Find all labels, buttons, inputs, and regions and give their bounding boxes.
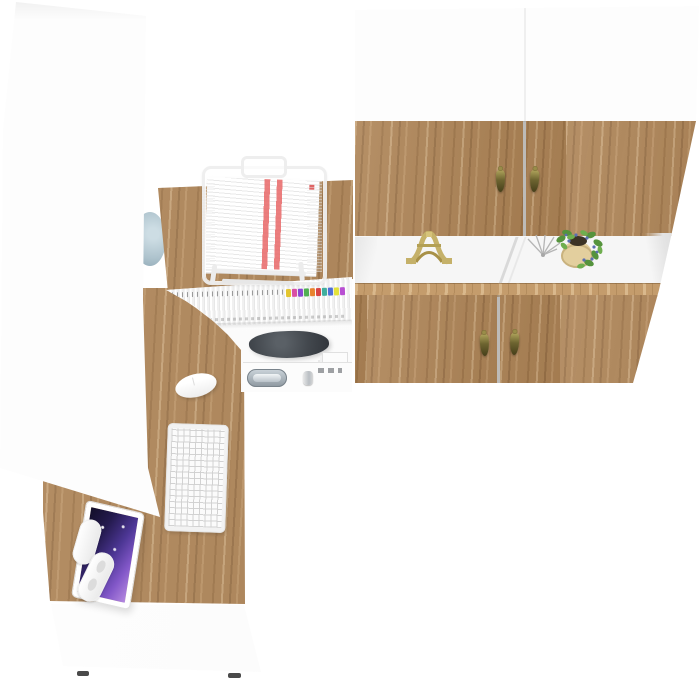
potted-plant bbox=[551, 229, 609, 271]
wire-tray-handle bbox=[241, 156, 287, 178]
wire-tray-frame bbox=[202, 166, 327, 285]
pedestal-foot bbox=[77, 671, 89, 676]
magazine-tab bbox=[334, 287, 339, 295]
magazine-tab bbox=[322, 288, 327, 296]
chrome-drawer-pull bbox=[247, 369, 287, 387]
keyboard bbox=[164, 423, 229, 533]
magazine-tab bbox=[328, 288, 333, 296]
door-gap bbox=[523, 121, 526, 236]
drawer-knob bbox=[303, 371, 313, 385]
magazine-tab bbox=[298, 289, 303, 297]
pedestal-foot bbox=[228, 673, 241, 678]
cabinet-top-seam bbox=[524, 0, 526, 121]
magazine-tab bbox=[292, 289, 297, 297]
furniture-render bbox=[0, 0, 700, 679]
cabinet-door-upper-right bbox=[526, 121, 700, 236]
magazine-tab bbox=[304, 288, 309, 296]
magazine-tab bbox=[340, 287, 345, 295]
shelf-side-wall bbox=[355, 237, 377, 285]
cabinet-door-lower-right bbox=[500, 295, 700, 383]
printer-vents bbox=[318, 368, 342, 373]
cabinet-door-lower-left bbox=[355, 295, 497, 383]
keyboard-keys bbox=[168, 428, 224, 528]
shelf-side-wall bbox=[636, 233, 678, 290]
eiffel-tower-figurine bbox=[402, 231, 456, 265]
magazine-tab bbox=[286, 289, 291, 297]
printer bbox=[248, 329, 329, 360]
magazine-tab bbox=[310, 288, 315, 296]
door-gap bbox=[497, 295, 500, 383]
cabinet-top-panel bbox=[352, 0, 700, 122]
magazine-tab bbox=[316, 288, 321, 296]
